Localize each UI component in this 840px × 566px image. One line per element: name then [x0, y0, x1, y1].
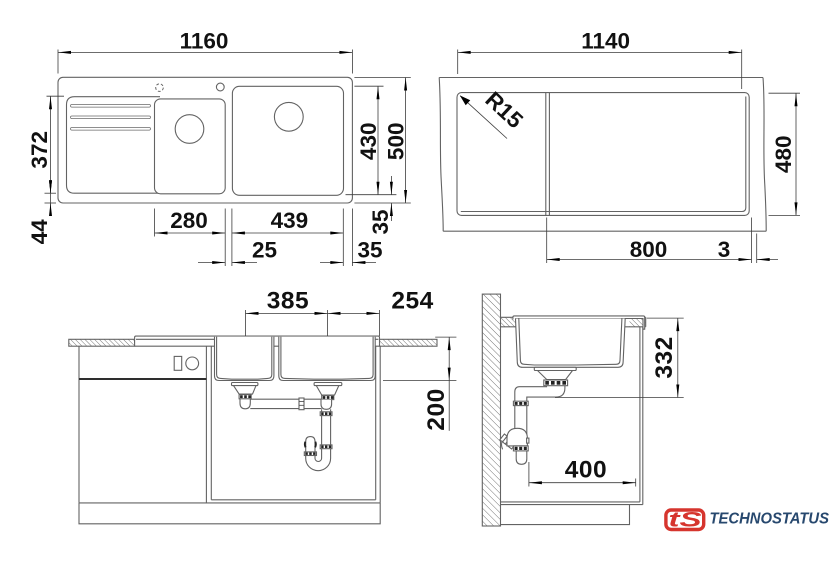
svg-text:280: 280 — [170, 208, 208, 233]
svg-text:480: 480 — [771, 136, 796, 174]
svg-text:3: 3 — [718, 237, 731, 262]
svg-text:372: 372 — [27, 131, 52, 169]
svg-text:254: 254 — [391, 288, 433, 315]
svg-text:439: 439 — [271, 208, 309, 233]
svg-text:35: 35 — [368, 209, 393, 234]
svg-text:800: 800 — [630, 237, 668, 262]
svg-text:35: 35 — [357, 238, 382, 263]
svg-text:1160: 1160 — [180, 29, 229, 54]
svg-text:25: 25 — [252, 238, 277, 263]
svg-text:44: 44 — [27, 219, 52, 245]
svg-text:332: 332 — [651, 336, 678, 378]
svg-text:1140: 1140 — [581, 29, 630, 54]
svg-text:385: 385 — [267, 288, 309, 315]
svg-text:400: 400 — [565, 457, 607, 484]
svg-text:500: 500 — [383, 123, 408, 161]
svg-text:200: 200 — [423, 388, 450, 430]
svg-text:TECHNOSTATUS: TECHNOSTATUS — [710, 511, 830, 528]
svg-text:430: 430 — [356, 123, 381, 161]
svg-text:tS: tS — [669, 509, 702, 532]
